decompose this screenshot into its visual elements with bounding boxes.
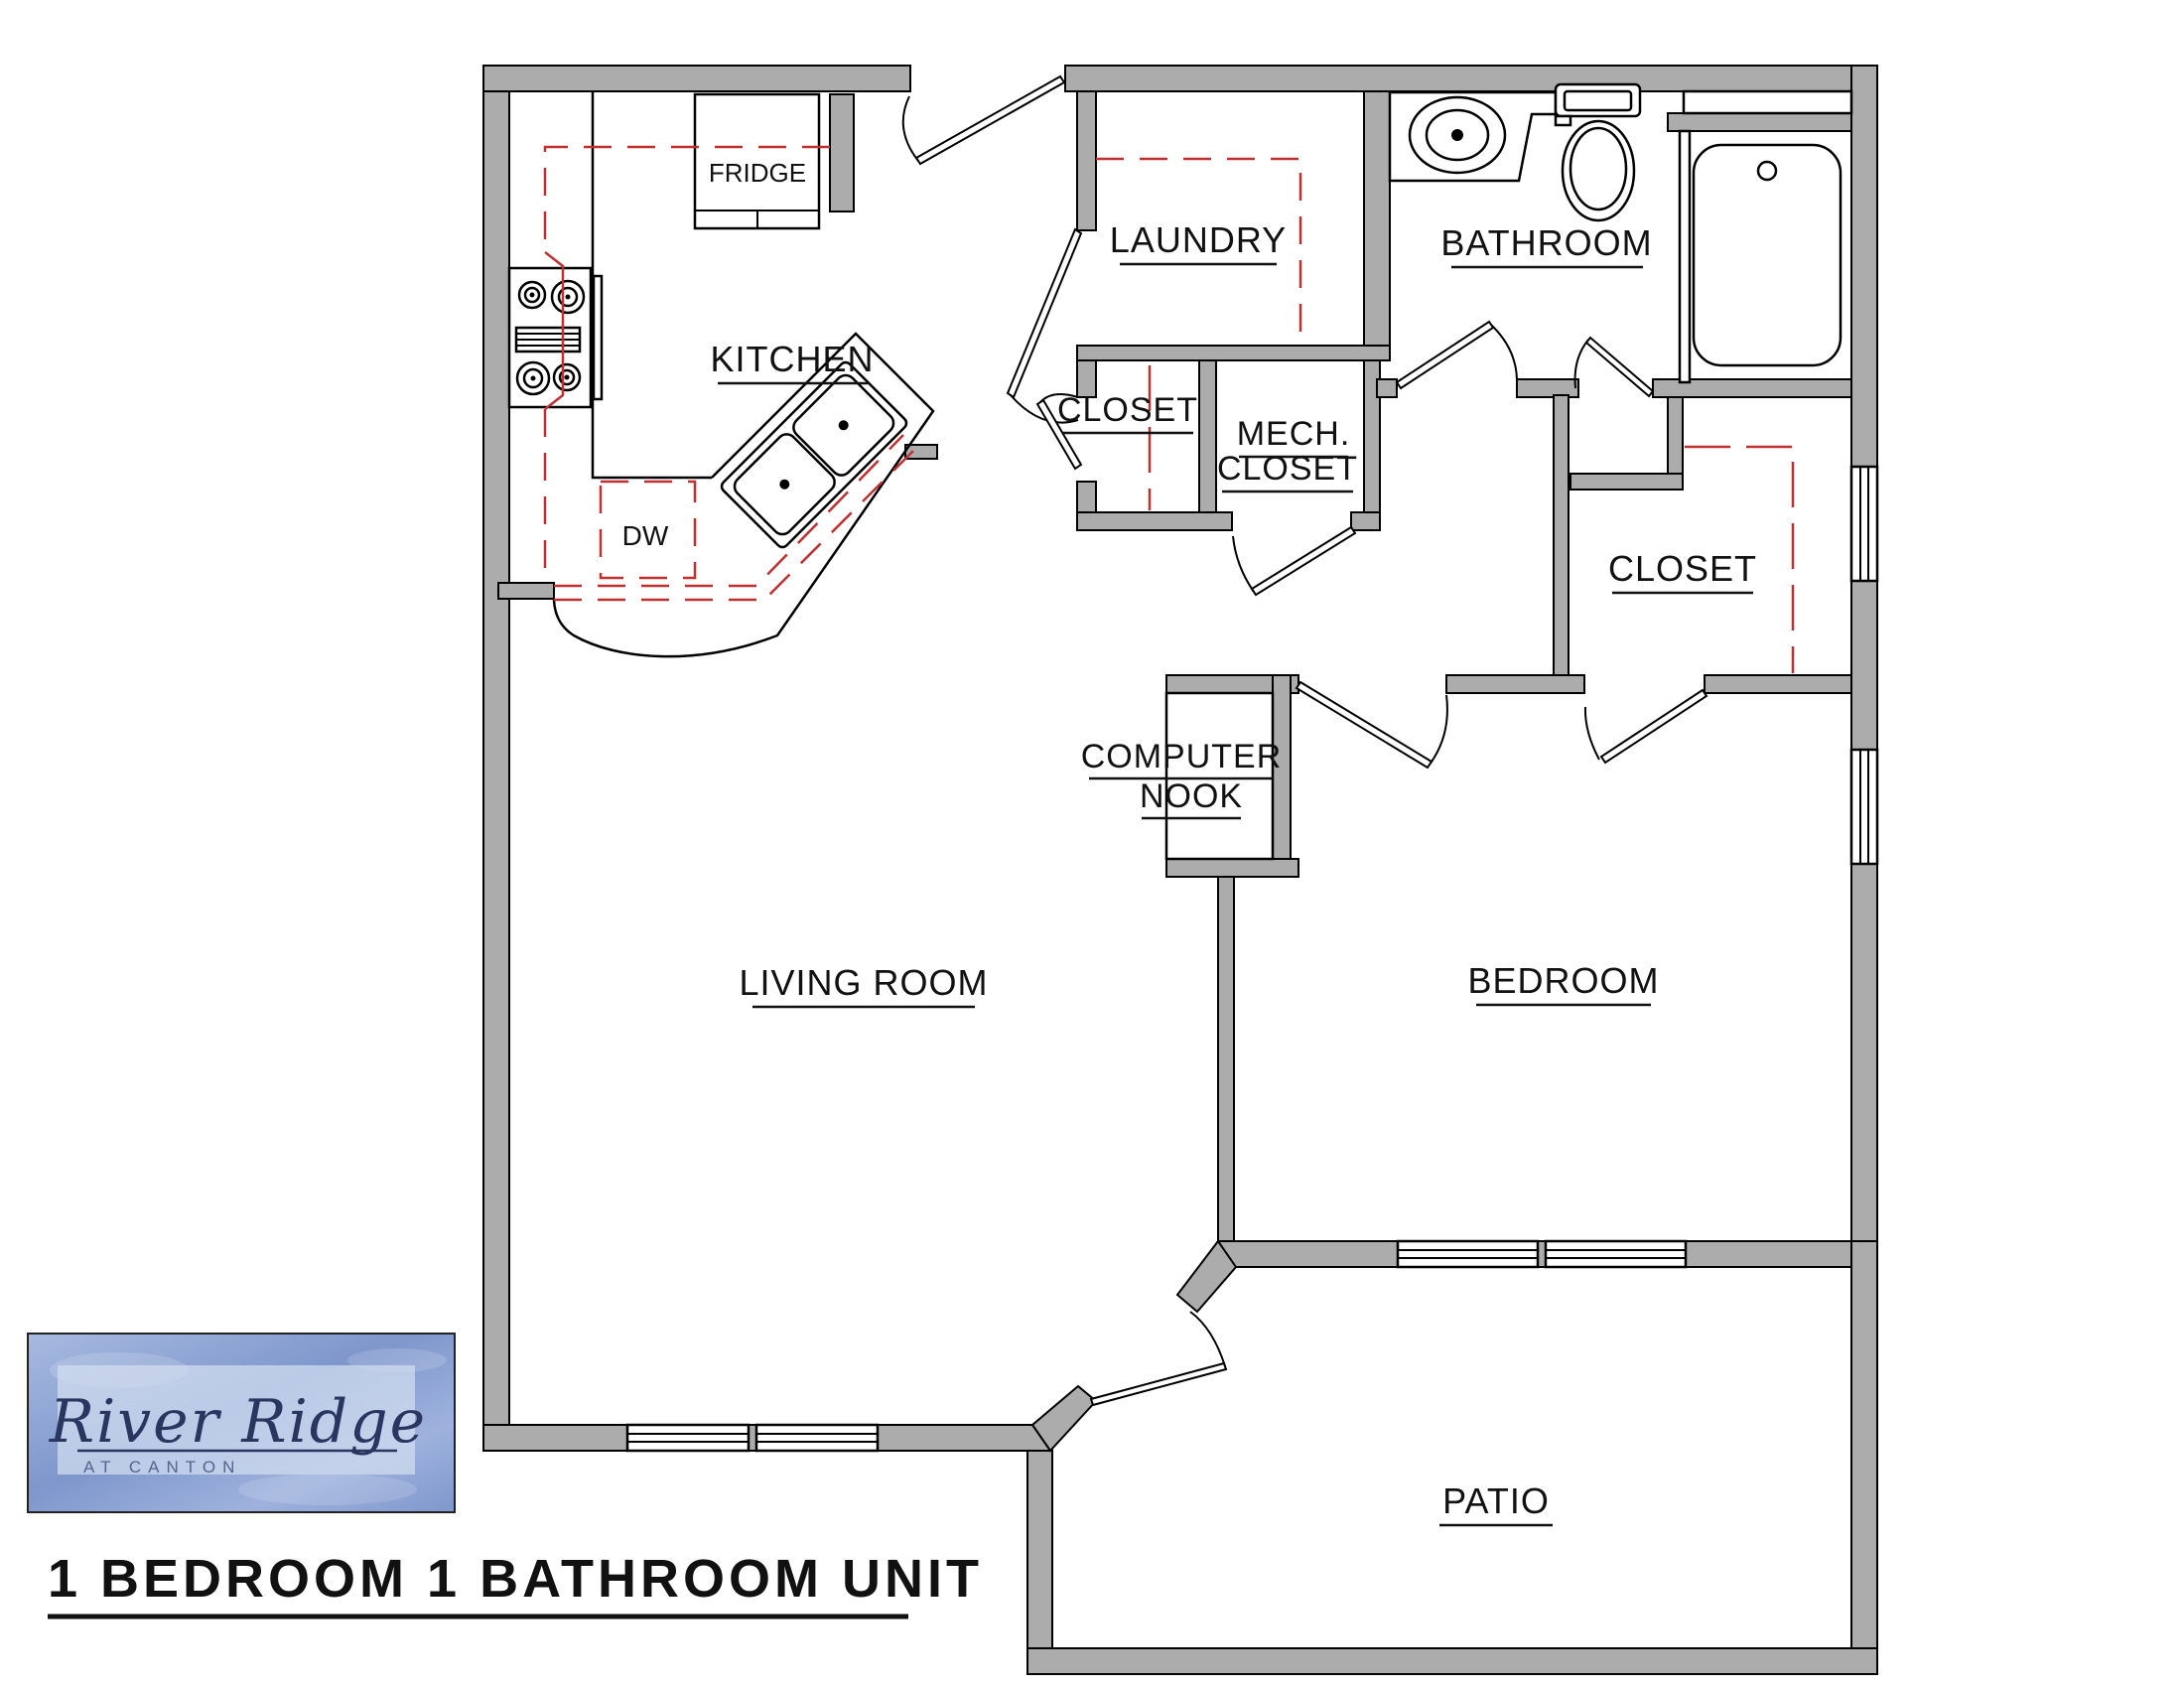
- wall: [1851, 864, 1877, 1241]
- wall: [1351, 512, 1380, 530]
- door-swing-icon: [1233, 527, 1355, 595]
- wall: [1218, 877, 1234, 1241]
- computer-nook-label-line2: NOOK: [1140, 777, 1243, 815]
- window-icon: [627, 1425, 749, 1451]
- fridge-label: FRIDGE: [709, 158, 806, 188]
- laundry-closet-label: CLOSET: [1057, 391, 1198, 429]
- tub-alcove-wall: [1680, 131, 1690, 382]
- computer-nook-outline: [1166, 693, 1273, 859]
- wall: [1377, 379, 1397, 397]
- door-swing-icon: [1091, 1312, 1226, 1405]
- wall: [1668, 113, 1851, 131]
- wall-stub-island: [905, 445, 937, 459]
- wall: [1668, 397, 1683, 474]
- windows: [627, 467, 1877, 1451]
- wall: [1166, 859, 1298, 877]
- window-icon: [1851, 467, 1877, 581]
- wall: [1851, 66, 1877, 467]
- toilet-icon: [1556, 84, 1640, 220]
- wall: [483, 66, 910, 91]
- wall: [1077, 91, 1096, 230]
- wall: [1199, 360, 1216, 512]
- window-icon: [1851, 750, 1877, 864]
- computer-nook-label-line1: COMPUTER: [1081, 738, 1283, 775]
- wall: [1705, 675, 1851, 693]
- dishwasher-label: DW: [622, 520, 669, 551]
- wall: [1077, 512, 1232, 530]
- window-icon: [1398, 1241, 1538, 1267]
- wall: [1065, 66, 1877, 91]
- wall-stub-counter: [498, 583, 554, 599]
- logo: River Ridge AT CANTON: [28, 1334, 455, 1512]
- wall: [1077, 482, 1096, 512]
- door-swing-icon: [1397, 322, 1517, 388]
- bedroom-closet-label: CLOSET: [1608, 548, 1757, 589]
- wall: [1851, 581, 1877, 750]
- title-block: 1 BEDROOM 1 BATHROOM UNIT: [48, 1549, 983, 1617]
- wall: [1077, 346, 1390, 360]
- floor-plan-page: KITCHEN FRIDGE DW LAUNDRY CLOSET MECH. C…: [0, 0, 2184, 1688]
- door-swing-icon: [1297, 682, 1447, 768]
- window-icon: [756, 1425, 878, 1451]
- door-swing-icon: [903, 76, 1064, 164]
- kitchen-label: KITCHEN: [710, 339, 874, 379]
- wall: [1570, 474, 1683, 490]
- wall-stub-fridge: [830, 94, 854, 211]
- door-swing-icon: [1585, 690, 1706, 763]
- laundry-label: LAUNDRY: [1110, 219, 1287, 260]
- wall: [1554, 395, 1569, 675]
- patio-label: PATIO: [1442, 1480, 1550, 1521]
- wall: [1273, 675, 1291, 877]
- bedroom-label: BEDROOM: [1467, 960, 1659, 1001]
- wall: [1027, 1648, 1877, 1674]
- logo-tagline: AT CANTON: [83, 1458, 241, 1477]
- wall: [1027, 1451, 1052, 1648]
- wall: [1446, 675, 1584, 693]
- mech-closet-label-line2: CLOSET: [1217, 450, 1358, 488]
- living-room-label: LIVING ROOM: [739, 962, 988, 1003]
- wall: [483, 66, 509, 1451]
- kitchen-island-sink-icon: [720, 360, 909, 550]
- wall: [1364, 91, 1390, 346]
- bathroom-label: BATHROOM: [1440, 222, 1652, 263]
- page-title: 1 BEDROOM 1 BATHROOM UNIT: [48, 1549, 983, 1609]
- stove-icon: [509, 268, 602, 407]
- bathtub-icon: [1694, 145, 1841, 365]
- door-swing-icon: [1575, 338, 1653, 396]
- mech-closet-label-line1: MECH.: [1237, 415, 1351, 453]
- floor-plan-drawing: KITCHEN FRIDGE DW LAUNDRY CLOSET MECH. C…: [0, 0, 2184, 1688]
- wall: [1851, 1241, 1877, 1674]
- vanity-counter: [1390, 92, 1556, 181]
- doors: [903, 76, 1706, 1405]
- room-labels: KITCHEN FRIDGE DW LAUNDRY CLOSET MECH. C…: [622, 158, 1757, 1525]
- tub-ledge: [1684, 91, 1851, 113]
- window-icon: [1546, 1241, 1686, 1267]
- logo-name: River Ridge: [49, 1387, 427, 1457]
